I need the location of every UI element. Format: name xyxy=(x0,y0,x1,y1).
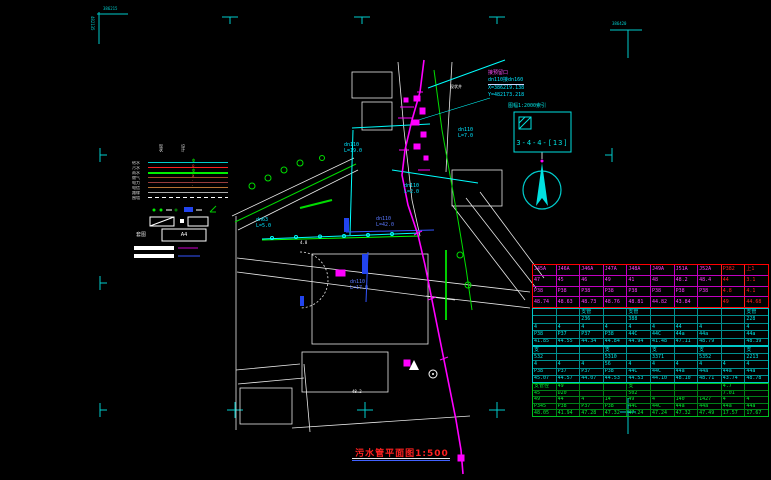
legend-frame-value: A4 xyxy=(162,229,206,241)
table-cell xyxy=(721,339,745,345)
map-text: 386215 xyxy=(103,7,117,11)
table-cell: 44.53 xyxy=(603,376,627,382)
table-row: 48.7448.6348.7348.7648.8144.8243.844944.… xyxy=(533,296,768,307)
table-cell: 48.81 xyxy=(626,297,650,307)
sheet-index-label: 3-4-4-[13] xyxy=(514,139,571,147)
legend-line-glyph: Φ xyxy=(192,169,195,173)
table-row: 236388228 xyxy=(533,315,768,322)
table-cell: 41.85 xyxy=(533,339,556,345)
table-cell: 44.53 xyxy=(626,376,650,382)
title-underline-secondary xyxy=(352,460,450,461)
annotation-line: X=386219.138 xyxy=(488,85,524,92)
pipe-label: L=2.0 xyxy=(404,190,419,195)
legend-row-label: 围墙 xyxy=(132,196,148,200)
table-cell: 47.32 xyxy=(674,410,698,416)
table-cell: 44 xyxy=(721,276,745,286)
main-sewer-pipeline xyxy=(336,60,464,474)
table-cell: 48.63 xyxy=(556,297,580,307)
legend-line-sample xyxy=(148,197,228,198)
table-cell: 47.24 xyxy=(650,410,674,416)
table-cell: 43.84 xyxy=(674,297,698,307)
legend-row-label: 路缘 xyxy=(132,191,148,195)
legend-line-sample xyxy=(148,192,228,193)
table-row: 45D205027.01 xyxy=(533,390,768,397)
table-cell: 44.57 xyxy=(556,376,580,382)
table-cell: J46A xyxy=(579,265,603,275)
table-cell: P38 xyxy=(697,287,721,297)
legend-row: 围墙 xyxy=(132,195,228,200)
legend-row-label: 给水 xyxy=(132,161,148,165)
annotation-line: Y=482173.218 xyxy=(488,92,524,99)
table-row: 45.0744.5744.0744.5344.5344.1048.1048.71… xyxy=(533,375,768,382)
table-row: 48.0541.9447.2847.3247.2447.2447.3247.49… xyxy=(533,409,768,416)
table-cell: J47A xyxy=(603,265,627,275)
table-row: 4944414494140142744 xyxy=(533,396,768,403)
table-cell: 48.74 xyxy=(533,297,556,307)
legend-line-sample: Φ xyxy=(148,172,228,174)
table-cell: 48 xyxy=(650,276,674,286)
table-cell: 48.2 xyxy=(674,276,698,286)
pipe-label: L=7.0 xyxy=(458,134,473,139)
table-cell: 47.28 xyxy=(579,410,603,416)
table-row: P38P38P38P38P38P38P38P384.84.1 xyxy=(533,286,768,297)
table-cell: 44.94 xyxy=(626,339,650,345)
legend-line-sample: o xyxy=(148,167,228,168)
table-section: 支支支支支532531033715352221344456444444P38P3… xyxy=(532,346,769,383)
table-row: J45AJ46AJ46AJ47AJ48AJ49AJ51AJ52AP382上1 xyxy=(533,265,768,275)
annotation-line: dn110接dn160 xyxy=(488,77,524,85)
table-row: P345P38P37P3844C44C44a44a44a44a xyxy=(533,403,768,410)
table-cell: 上1 xyxy=(744,265,768,275)
table-cell: 48.39 xyxy=(744,339,768,345)
table-cell: 17.57 xyxy=(721,410,745,416)
legend-line-sample: · xyxy=(148,182,228,183)
table-row: P38P37P37P3844C44C44a44a44a44a xyxy=(533,368,768,375)
table-cell: P38 xyxy=(674,287,698,297)
table-cell xyxy=(697,297,721,307)
blue-utility-lines xyxy=(300,218,434,306)
table-row: 47454649414848.248.4443.1 xyxy=(533,275,768,286)
north-arrow xyxy=(523,152,561,209)
table-cell: 45.07 xyxy=(533,376,556,382)
pipe-label: L=5.0 xyxy=(256,224,271,229)
legend-row-label: 电力 xyxy=(132,181,148,185)
table-cell: 48.78 xyxy=(744,376,768,382)
table-cell: 44.34 xyxy=(579,339,603,345)
table-cell: P38 xyxy=(533,287,556,297)
roads-and-buildings xyxy=(232,62,544,432)
pipe-label: L=17.0 xyxy=(350,286,368,291)
table-cell: 44.68 xyxy=(744,297,768,307)
table-row: 4444444444 xyxy=(533,323,768,330)
legend-line-sample: · xyxy=(148,187,228,188)
table-cell: P38 xyxy=(556,287,580,297)
legend-panel: 给水Φ污水o雨水Φ燃气x电力·电信·路缘围墙 xyxy=(132,160,228,200)
table-cell: 46 xyxy=(579,276,603,286)
table-row: 44456444444 xyxy=(533,360,768,367)
table-cell: 41.94 xyxy=(556,410,580,416)
table-cell: J46A xyxy=(556,265,580,275)
table-cell: 47.49 xyxy=(697,410,721,416)
legend-header-current: 现状 xyxy=(158,144,164,152)
table-cell: 4.1 xyxy=(744,287,768,297)
map-text: 4.8 xyxy=(300,241,307,245)
pipe-label: L=42.0 xyxy=(376,223,394,228)
table-row: P38P37P37P3844C44C44a44a44a xyxy=(533,330,768,337)
legend-line-glyph: · xyxy=(192,184,193,188)
table-cell: 48.10 xyxy=(674,376,698,382)
map-text: 482135 xyxy=(90,16,94,30)
table-cell: 48.73 xyxy=(579,297,603,307)
table-cell: J48A xyxy=(626,265,650,275)
table-section: J45AJ46AJ46AJ47AJ48AJ49AJ51AJ52AP382上147… xyxy=(532,264,769,308)
cyan-water-pipes xyxy=(262,60,505,240)
legend-headers: 现状 设计 xyxy=(158,144,186,152)
legend-row-label: 雨水 xyxy=(132,171,148,175)
table-row: 5325310337153522213 xyxy=(533,353,768,360)
table-cell: P382 xyxy=(721,265,745,275)
table-section: 支管支管支管2363882284444444444P38P37P37P3844C… xyxy=(532,308,769,346)
table-cell: 41 xyxy=(626,276,650,286)
table-cell: 47.11 xyxy=(674,339,698,345)
pipe-label: L=19.0 xyxy=(344,149,362,154)
map-text: 现状井 xyxy=(450,85,462,89)
title-underline xyxy=(352,458,450,459)
table-cell: 49 xyxy=(603,276,627,286)
table-cell: 49 xyxy=(721,297,745,307)
table-cell: 41.48 xyxy=(650,339,674,345)
table-cell: 3.1 xyxy=(744,276,768,286)
legend-header-design: 设计 xyxy=(180,144,186,152)
table-cell: P38 xyxy=(579,287,603,297)
table-cell: 48.05 xyxy=(533,410,556,416)
table-cell: P38 xyxy=(626,287,650,297)
table-cell: J49A xyxy=(650,265,674,275)
map-text: 48.2 xyxy=(352,390,362,394)
sheet-index-caption: 图幅1:2000索引 xyxy=(508,102,546,109)
table-cell: P38 xyxy=(603,287,627,297)
table-cell: J45A xyxy=(533,265,556,275)
table-cell: 44.55 xyxy=(556,339,580,345)
legend-row-label: 污水 xyxy=(132,166,148,170)
table-cell: P38 xyxy=(650,287,674,297)
table-row: 41.8544.5544.3444.8444.9441.4847.1148.79… xyxy=(533,338,768,345)
cad-canvas[interactable]: 接预留口 dn110接dn160 X=386219.138 Y=482173.2… xyxy=(0,0,771,480)
table-cell: 44.10 xyxy=(650,376,674,382)
legend-line-sample: Φ xyxy=(148,162,228,163)
elevation-table: J45AJ46AJ46AJ47AJ48AJ49AJ51AJ52AP382上147… xyxy=(532,264,769,417)
table-cell: 47.32 xyxy=(603,410,627,416)
legend-line-sample: x xyxy=(148,177,228,178)
table-cell: 43.74 xyxy=(721,376,745,382)
legend-frame-label: 套图 xyxy=(136,231,146,238)
table-cell: 48.71 xyxy=(697,376,721,382)
legend-row-label: 电信 xyxy=(132,186,148,190)
table-cell: 47.24 xyxy=(626,410,650,416)
table-cell: 44.07 xyxy=(579,376,603,382)
legend-row-label: 燃气 xyxy=(132,176,148,180)
table-cell: 17.67 xyxy=(744,410,768,416)
survey-symbols xyxy=(409,360,437,378)
table-cell: 45 xyxy=(556,276,580,286)
table-cell: 48.76 xyxy=(603,297,627,307)
table-cell: 47 xyxy=(533,276,556,286)
table-cell: 44.82 xyxy=(650,297,674,307)
table-cell: J52A xyxy=(697,265,721,275)
table-cell: 44.84 xyxy=(603,339,627,345)
table-cell: 48.4 xyxy=(697,276,721,286)
table-cell: 4.8 xyxy=(721,287,745,297)
map-text: 386420 xyxy=(612,22,626,26)
coordinate-annotation: 接预留口 dn110接dn160 X=386219.138 Y=482173.2… xyxy=(488,70,524,99)
table-cell: 48.79 xyxy=(697,339,721,345)
annotation-line: 接预留口 xyxy=(488,70,524,77)
table-section: 支管径49支4.745D205027.014944414494140142744… xyxy=(532,383,769,417)
table-cell: J51A xyxy=(674,265,698,275)
